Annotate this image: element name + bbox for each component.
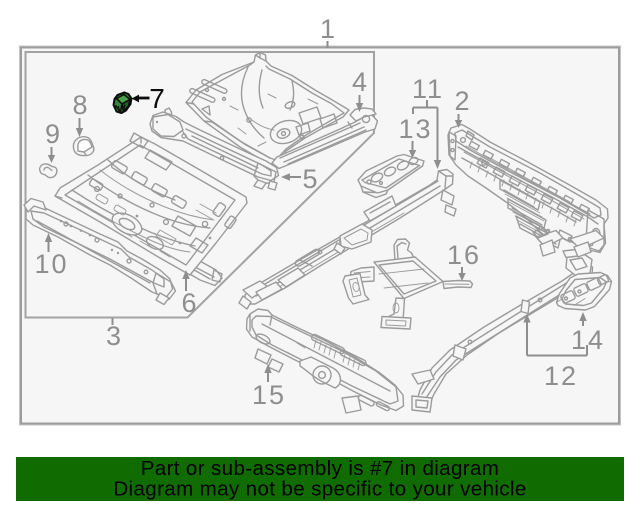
- svg-text:2: 2: [454, 86, 469, 116]
- svg-text:4: 4: [352, 67, 367, 97]
- svg-text:6: 6: [181, 288, 196, 318]
- svg-text:Diagram may not be specific to: Diagram may not be specific to your vehi…: [113, 478, 526, 501]
- svg-text:11: 11: [412, 74, 444, 104]
- svg-text:8: 8: [72, 90, 87, 120]
- svg-text:12: 12: [544, 361, 578, 391]
- svg-text:15: 15: [252, 380, 286, 410]
- svg-text:5: 5: [302, 164, 317, 194]
- svg-text:16: 16: [447, 240, 481, 270]
- svg-text:1: 1: [320, 14, 335, 44]
- svg-text:3: 3: [106, 321, 121, 351]
- svg-text:9: 9: [45, 119, 60, 149]
- svg-text:10: 10: [34, 249, 68, 279]
- svg-text:7: 7: [149, 83, 165, 114]
- svg-text:13: 13: [398, 114, 432, 144]
